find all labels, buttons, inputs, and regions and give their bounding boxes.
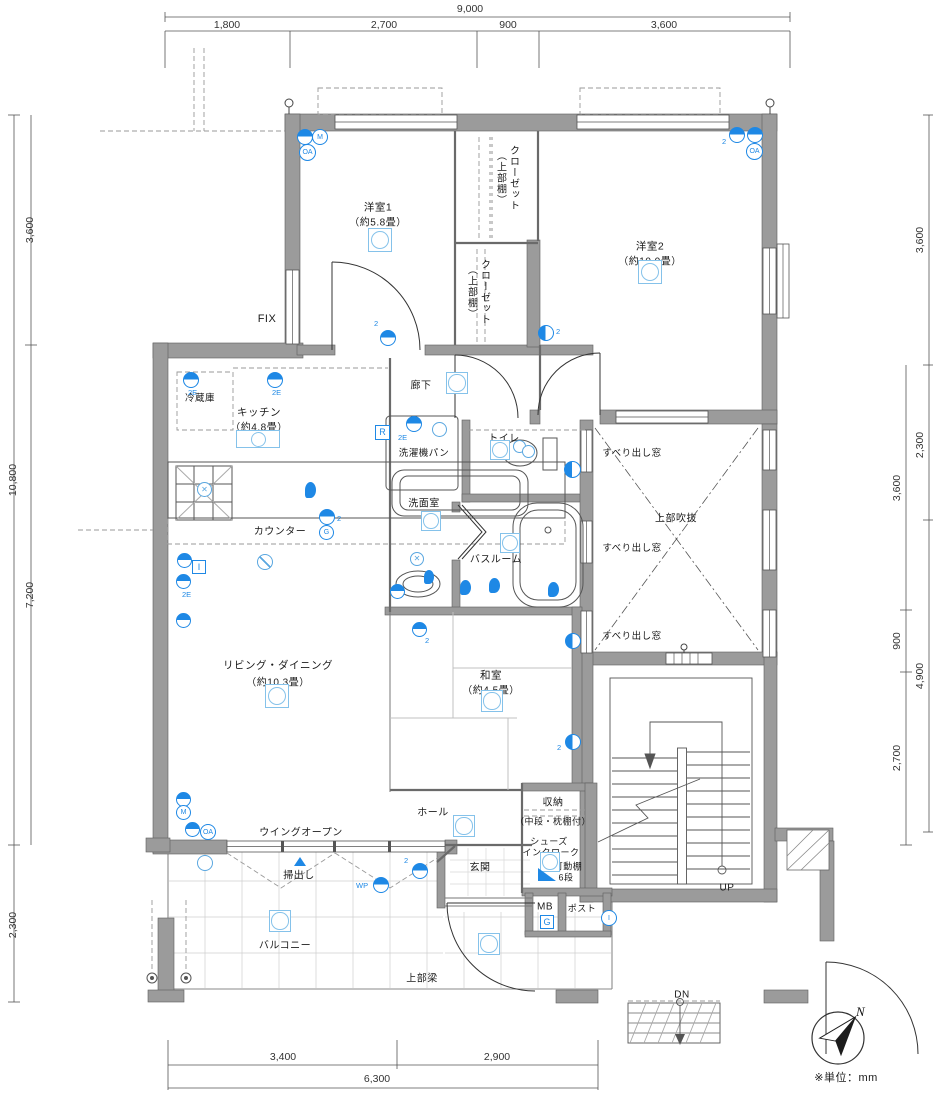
- outlet-icon: [319, 509, 335, 525]
- waterproof-outlet-icon: [373, 877, 389, 893]
- oa-outlet-icon: OA: [299, 144, 316, 161]
- multimedia-outlet-icon: M: [176, 805, 191, 820]
- tv-outlet-icon: [747, 127, 763, 143]
- dim-bottom-seg: 3,400: [270, 1051, 296, 1063]
- label-wing-open: ウイングオープン: [259, 824, 342, 839]
- outlet-icon: [412, 863, 428, 879]
- room-label-living: リビング・ダイニング: [223, 658, 333, 673]
- room-size-yoshitsu1: （約5.8畳）: [349, 214, 406, 229]
- stove-icon: ✕: [197, 482, 212, 497]
- room-label-balcony: バルコニー: [259, 937, 311, 952]
- outlet-type-label: 2E: [188, 389, 197, 397]
- dim-bottom-seg: 2,900: [484, 1051, 510, 1063]
- ceiling-light-icon: [368, 228, 392, 252]
- downlight-icon: [197, 855, 213, 871]
- downlight-icon: [432, 422, 447, 437]
- ceiling-light-icon: [500, 533, 520, 553]
- outlet-icon: [176, 613, 191, 628]
- outlet-count-label: 2: [374, 320, 378, 328]
- ceiling-light-icon: [269, 910, 291, 932]
- label-suberidashi-2: すべり出し窓: [602, 540, 661, 554]
- label-suberidashi-1: すべり出し窓: [602, 445, 661, 459]
- room-label-closet2: クローゼット: [477, 259, 492, 325]
- interphone-icon: I: [601, 910, 617, 926]
- outlet-icon: [177, 553, 192, 568]
- room-label-washitsu: 和室: [480, 668, 502, 683]
- dim-top-seg: 900: [499, 19, 517, 31]
- outlet-icon: [729, 127, 745, 143]
- room-label-closet1: クローゼット: [506, 145, 521, 211]
- dim-top-seg: 1,800: [214, 19, 240, 31]
- fan-outlet-icon: [538, 325, 554, 341]
- ceiling-cap-icon: [257, 554, 273, 570]
- outlet-count-label: 2: [556, 328, 560, 336]
- faucet-icon: [424, 570, 434, 584]
- outlet-type-label: 2E: [398, 434, 407, 442]
- shower-icon: [460, 580, 471, 595]
- outlet-icon: [380, 330, 396, 346]
- interphone-box-icon: I: [192, 560, 206, 574]
- dim-left-balcony: 2,300: [7, 912, 19, 938]
- oa-outlet-icon: OA: [746, 143, 763, 160]
- label-sentakuki-pan: 洗濯機パン: [399, 445, 449, 459]
- floorplan-drawing: [0, 0, 933, 1096]
- outlet-icon: [412, 622, 427, 637]
- ceiling-light-icon: [481, 690, 503, 712]
- label-joubu-hari: 上部梁: [406, 970, 438, 985]
- label-fix: FIX: [258, 313, 277, 325]
- exhaust-fan-icon: [564, 461, 581, 478]
- fan-outlet-icon: [565, 633, 581, 649]
- dim-top-total: 9,000: [457, 3, 483, 15]
- dim-bottom-total: 6,300: [364, 1073, 390, 1085]
- room-label-hall: ホール: [417, 804, 449, 819]
- label-mb: MB: [537, 902, 553, 913]
- outlet-count-label: 2: [722, 138, 726, 146]
- void-x: [595, 428, 758, 650]
- ceiling-light-icon: [478, 933, 500, 955]
- outlet-icon: [176, 574, 191, 589]
- room-label-genkan: 玄関: [470, 859, 491, 874]
- outlet-type-label: 2E: [182, 591, 191, 599]
- dim-right-inner: 3,600: [891, 475, 903, 501]
- oa-outlet-icon: OA: [200, 824, 216, 840]
- mirror-light-icon: ✕: [410, 552, 424, 566]
- dashed-lines: [78, 48, 720, 1001]
- outlet-type-label: WP: [356, 882, 368, 890]
- anchor-symbols: [285, 99, 774, 653]
- ceiling-light-icon: [453, 815, 475, 837]
- outlet-icon: [183, 372, 199, 388]
- tv-outlet-icon: [185, 822, 200, 837]
- dim-top-seg: 3,600: [651, 19, 677, 31]
- faucet-icon: [305, 482, 316, 498]
- dim-right-outer: 4,900: [914, 663, 926, 689]
- label-counter: カウンター: [254, 523, 307, 538]
- stairs: [598, 678, 752, 884]
- outlet-count-label: 2: [404, 857, 408, 865]
- dim-right-outer: 3,600: [914, 227, 926, 253]
- washlet-outlet-icon: [522, 445, 535, 458]
- ceiling-light-icon: [265, 684, 289, 708]
- dim-left-seg: 7,200: [24, 582, 36, 608]
- label-kadoudana-dan: 6段: [558, 871, 573, 884]
- unit-note: ※単位：mm: [814, 1069, 878, 1085]
- room-label-senmen: 洗面室: [408, 495, 440, 510]
- interior-walls: [390, 131, 540, 893]
- label-up: UP: [720, 883, 735, 894]
- multimedia-outlet-icon: M: [312, 129, 328, 145]
- outlet-count-label: 2: [337, 515, 341, 523]
- label-suberidashi-3: すべり出し窓: [602, 628, 661, 642]
- label-post: ポスト: [568, 902, 597, 915]
- ceiling-light-icon: [490, 440, 510, 460]
- room-label-rouka: 廊下: [411, 377, 432, 392]
- label-hakidashi: 掃出し: [283, 867, 315, 882]
- room-label-yoshitsu2: 洋室2: [636, 239, 664, 254]
- room-label-kitchen: キッチン: [237, 405, 281, 420]
- room-note-closet1: （上部棚）: [493, 151, 508, 206]
- ceiling-light-icon: [421, 511, 441, 531]
- dn-stairs: [628, 999, 720, 1046]
- outlet-icon: [390, 584, 405, 599]
- hatch-block: [787, 830, 829, 870]
- room-note-closet2: （上部棚）: [464, 265, 479, 320]
- outlet-type-label: 2E: [272, 389, 281, 397]
- room-note-shuno: （中段・枕棚付）: [515, 815, 591, 828]
- dim-left-total: 10,800: [7, 464, 19, 496]
- fan-outlet-icon: [565, 734, 581, 750]
- thin-lines: [390, 612, 532, 906]
- outlet-icon: [267, 372, 283, 388]
- faucet-icon: [489, 578, 500, 593]
- outlet-count-label: 2: [557, 744, 561, 752]
- dim-right-inner: 900: [891, 632, 903, 650]
- label-dn: DN: [674, 990, 689, 1001]
- kitchen-light-icon: [236, 430, 280, 448]
- hakidashi-marker-icon: [294, 857, 306, 866]
- dim-right-inner: 2,700: [891, 745, 903, 771]
- room-label-shuno: 収納: [543, 794, 564, 809]
- outlet-count-label: 2: [425, 637, 429, 645]
- dim-right-outer: 2,300: [914, 432, 926, 458]
- room-label-yoshitsu1: 洋室1: [364, 200, 392, 215]
- ceiling-light-icon: [638, 260, 662, 284]
- faucet-icon: [548, 582, 559, 597]
- gas-meter-icon: G: [540, 915, 554, 929]
- outlet-icon: [406, 416, 422, 432]
- dim-left-seg: 3,600: [24, 217, 36, 243]
- label-fukinuki: 上部吹抜: [655, 510, 697, 525]
- tv-outlet-icon: [297, 129, 313, 145]
- dim-top-seg: 2,700: [371, 19, 397, 31]
- floorplan-page: 9,000 1,800 2,700 900 3,600 10,800 3,600…: [0, 0, 933, 1096]
- gas-outlet-icon: G: [319, 525, 334, 540]
- compass-north-label: N: [856, 1004, 865, 1020]
- ceiling-light-icon: [446, 372, 468, 394]
- shoes-shelf-icon: [538, 868, 556, 881]
- remocon-box-icon: R: [375, 425, 390, 440]
